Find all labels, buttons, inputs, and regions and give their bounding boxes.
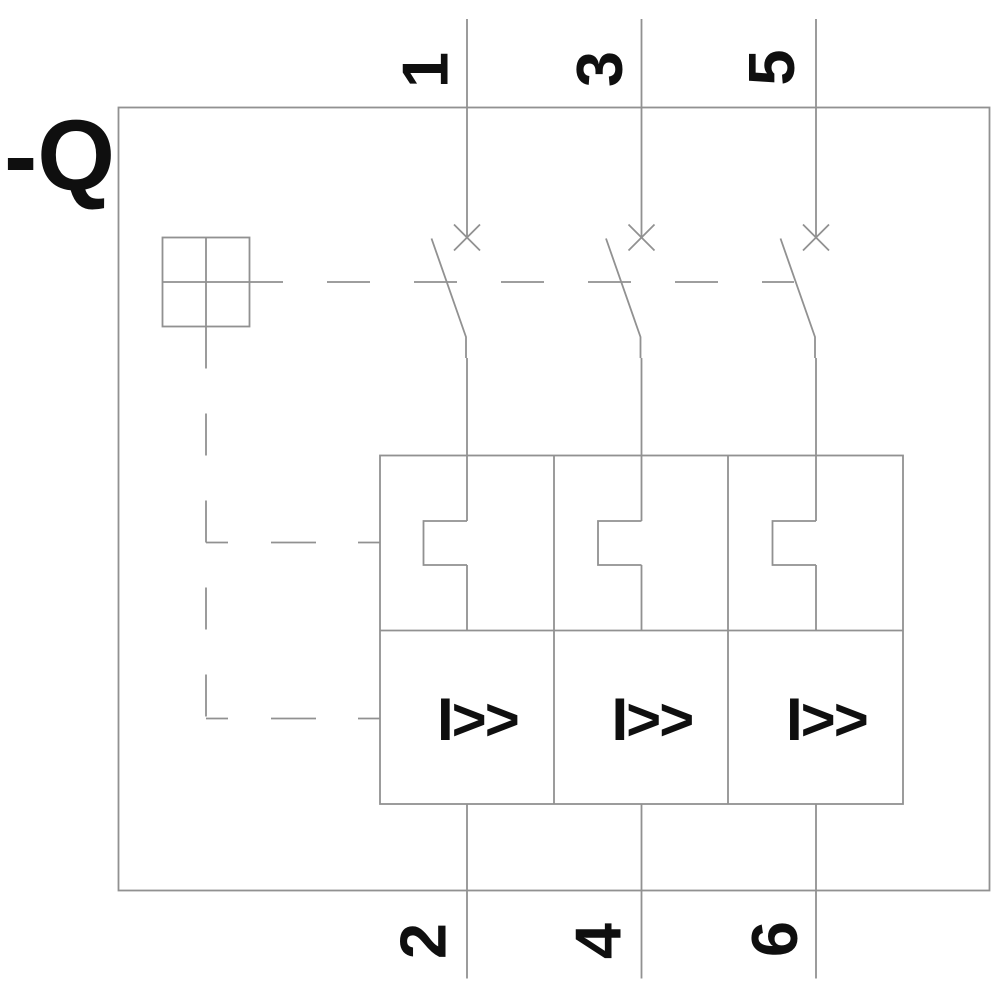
pole-3-magnetic-trip-symbol: I>> [786,686,867,753]
pole-1-switch-blade-icon [432,239,467,359]
mechanical-linkage-dashed-line [206,282,794,719]
pole-1 [424,19,481,979]
pole-3-switch-blade-icon [781,239,816,359]
pole-2-magnetic-trip-symbol: I>> [612,686,693,753]
pole-1-thermal-overload-step-icon [424,521,468,565]
pole-2-switch-blade-icon [606,239,641,359]
schematic-page: -Q 1 3 5 2 4 6 I>> I>> I>> [0,0,1000,1000]
pole-2 [598,19,655,979]
schematic-canvas: -Q 1 3 5 2 4 6 I>> I>> I>> [0,0,1000,1000]
terminal-label-top-5: 5 [735,49,808,85]
pole-1-magnetic-trip-symbol: I>> [437,686,518,753]
pole-3-thermal-overload-step-icon [773,521,817,565]
operator-square-cross-icon [163,238,284,327]
device-label: -Q [4,100,115,212]
terminal-label-top-3: 3 [563,51,636,87]
terminal-label-bottom-6: 6 [738,921,811,957]
pole-3 [773,19,830,979]
terminal-label-top-1: 1 [389,52,462,88]
terminal-label-bottom-2: 2 [387,923,460,959]
pole-2-thermal-overload-step-icon [598,521,642,565]
terminal-label-bottom-4: 4 [562,923,635,959]
